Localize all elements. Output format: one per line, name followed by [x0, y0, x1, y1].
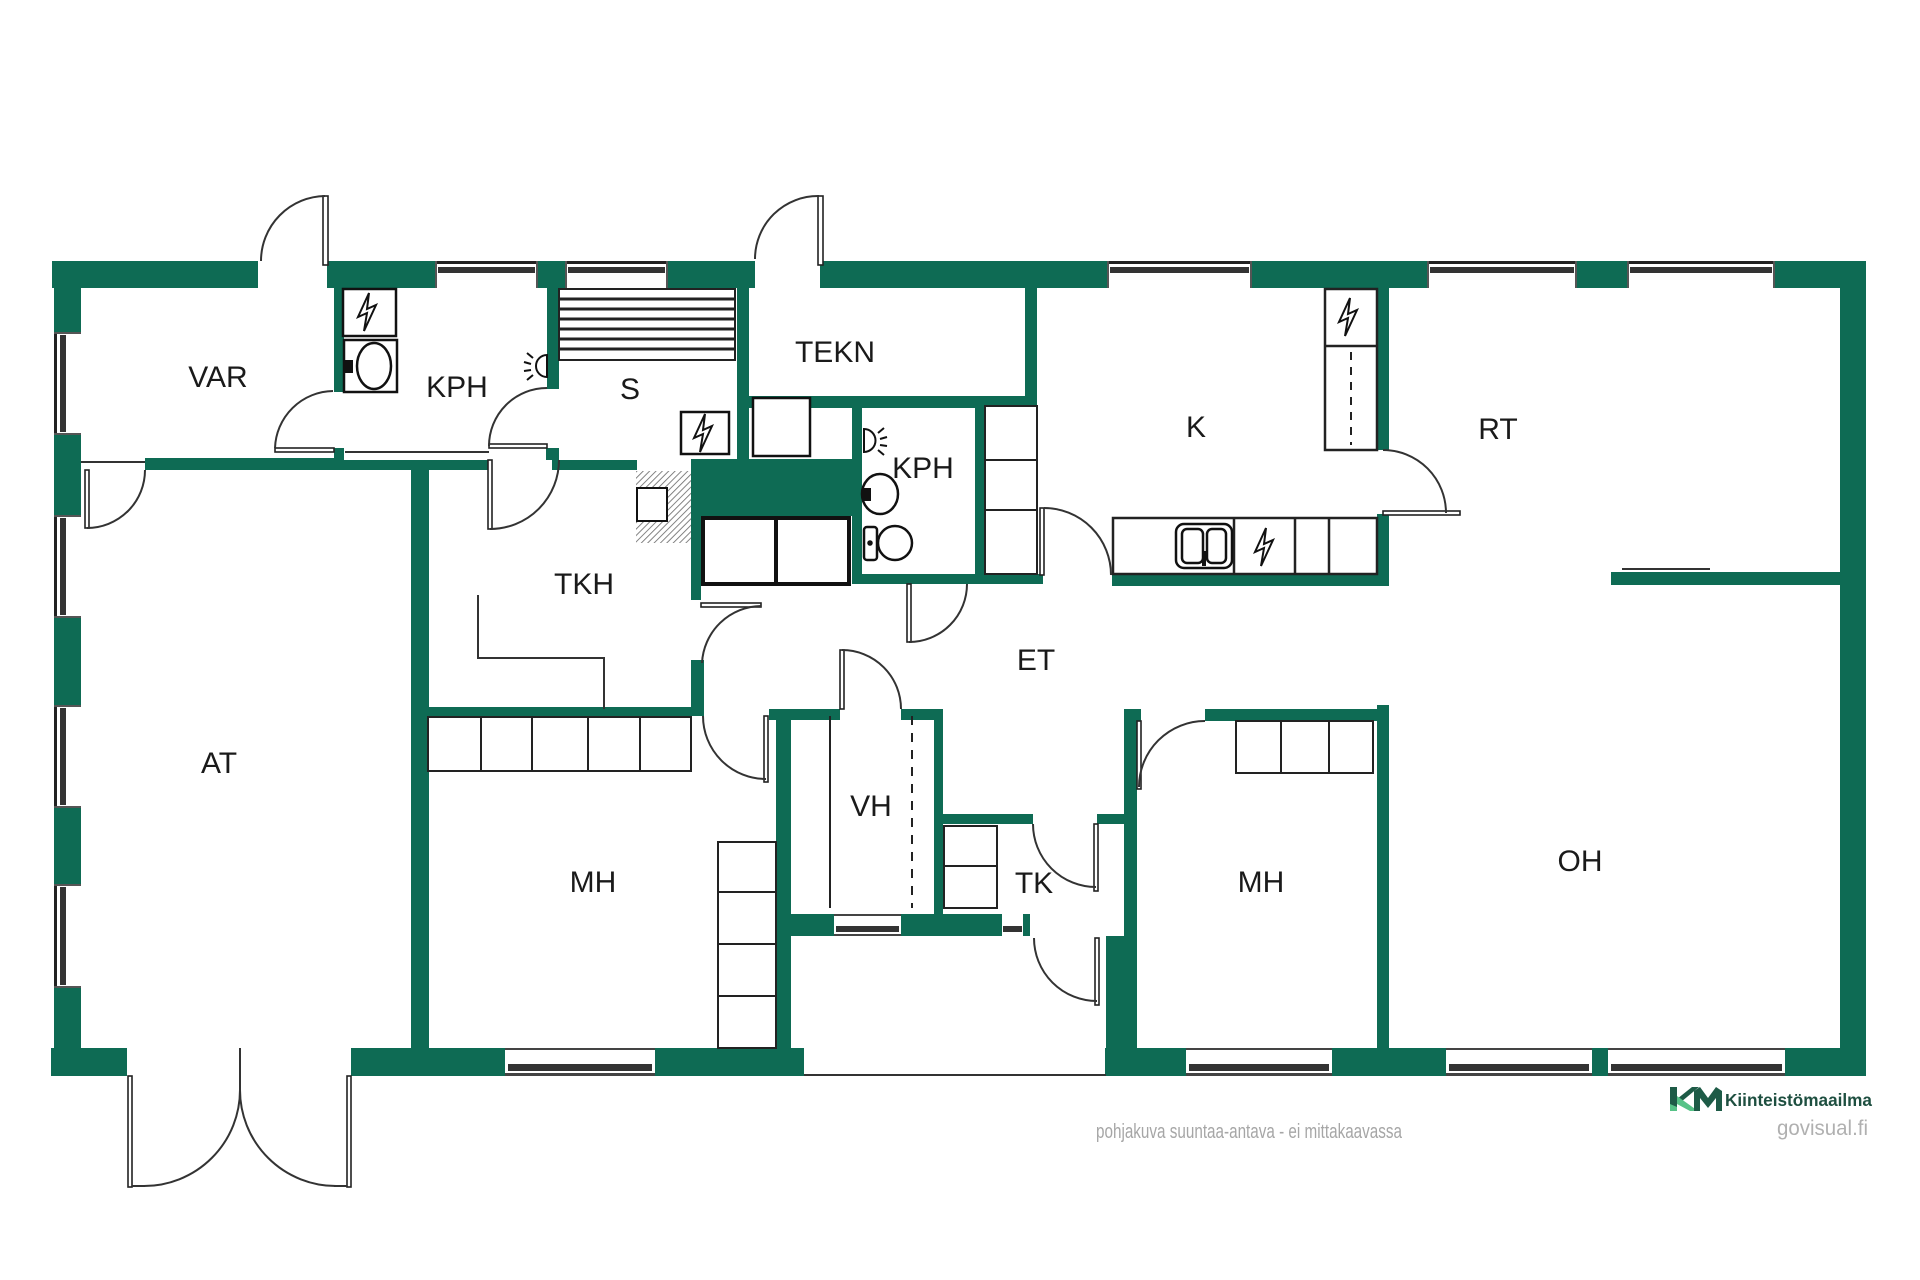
svg-text:S: S [620, 373, 640, 406]
svg-text:pohjakuva suuntaa-antava - ei: pohjakuva suuntaa-antava - ei mittakaava… [1096, 1121, 1403, 1143]
svg-text:TKH: TKH [554, 568, 614, 601]
svg-text:AT: AT [201, 747, 237, 780]
svg-text:RT: RT [1478, 413, 1517, 446]
svg-text:Kiinteistömaailma: Kiinteistömaailma [1725, 1090, 1872, 1110]
svg-text:TEKN: TEKN [795, 336, 875, 369]
svg-text:MH: MH [1238, 866, 1285, 899]
svg-text:MH: MH [570, 866, 617, 899]
svg-text:govisual.fi: govisual.fi [1777, 1117, 1868, 1140]
svg-text:TK: TK [1015, 867, 1053, 900]
svg-text:K: K [1186, 411, 1206, 444]
svg-text:VH: VH [850, 790, 892, 823]
svg-text:VAR: VAR [188, 361, 247, 394]
svg-text:KPH: KPH [426, 371, 488, 404]
svg-text:KPH: KPH [892, 452, 954, 485]
svg-text:ET: ET [1017, 644, 1055, 677]
svg-text:OH: OH [1558, 845, 1603, 878]
